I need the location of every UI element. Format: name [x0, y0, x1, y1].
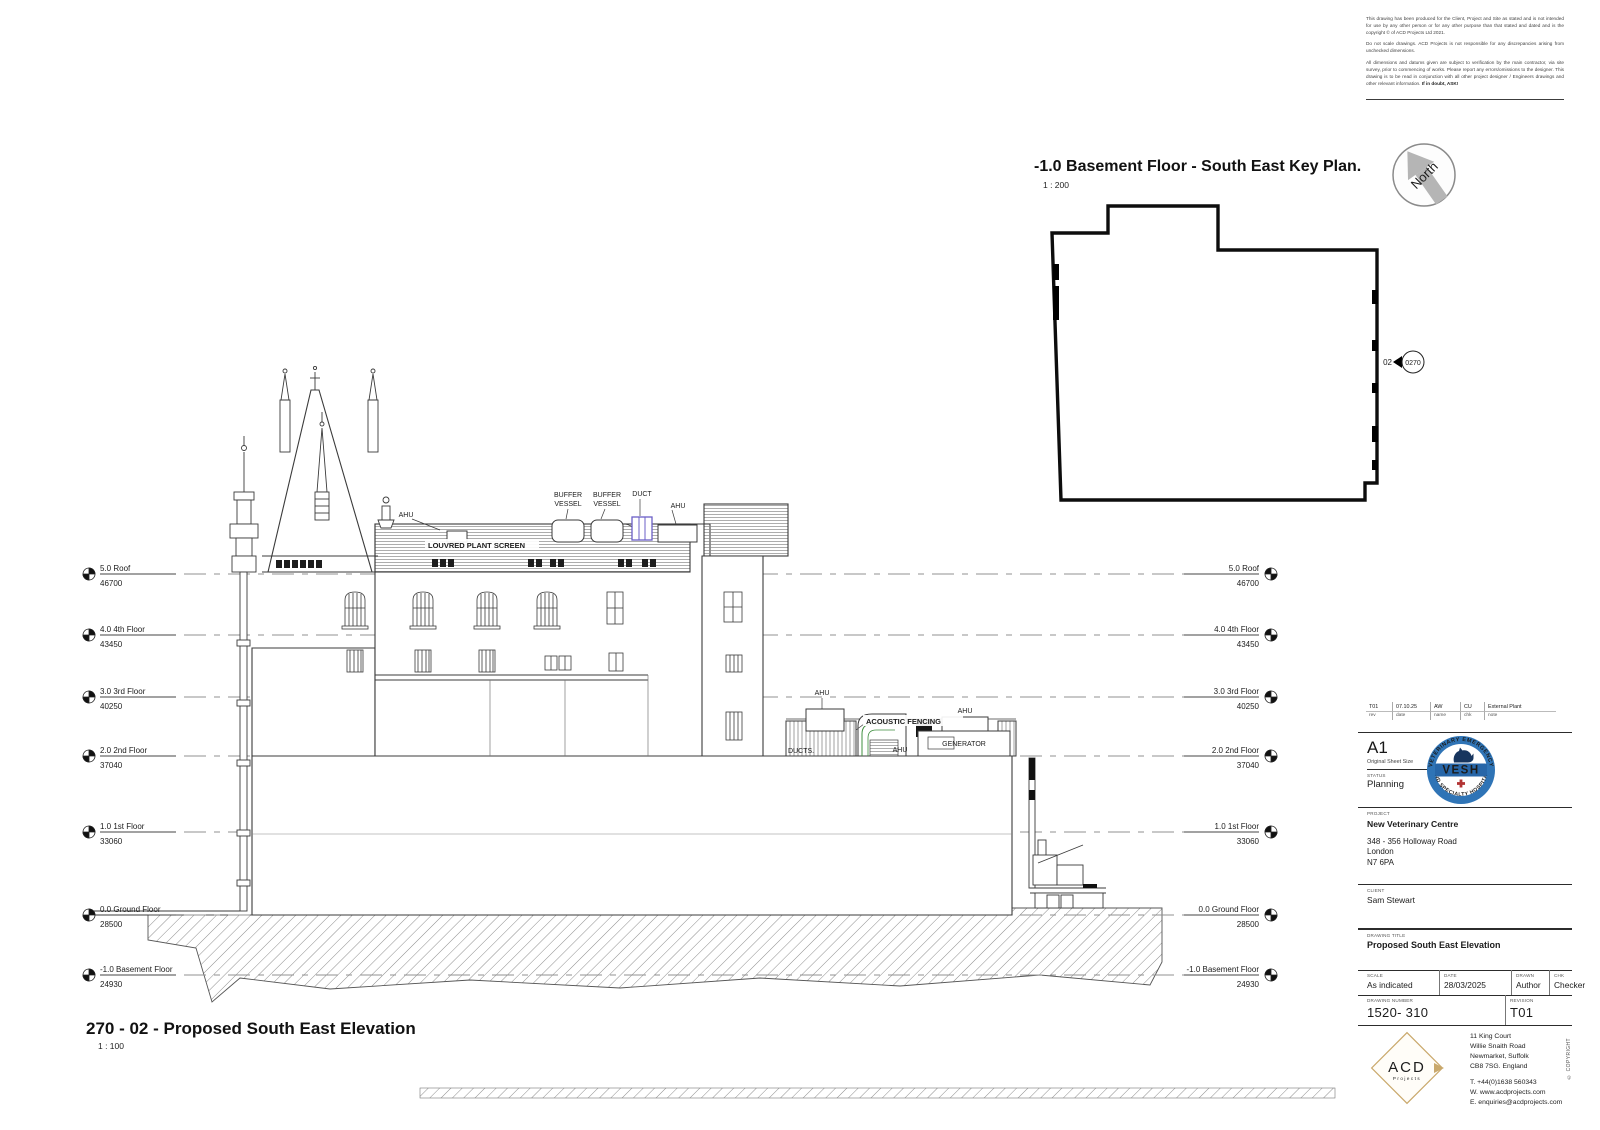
svg-text:5.0 Roof: 5.0 Roof — [100, 564, 131, 573]
corner-cupola — [378, 497, 394, 528]
svg-text:VESSEL: VESSEL — [554, 501, 581, 508]
elevation-title: 270 - 02 - Proposed South East Elevation — [86, 1019, 416, 1039]
label-ahu: AHU — [958, 708, 973, 715]
svg-text:24930: 24930 — [100, 980, 123, 989]
drawing-sheet: 5.0 Roof46700 4.0 4th Floor43450 3.0 3rd… — [0, 0, 1600, 1130]
label-acoustic-fencing: ACOUSTIC FENCING — [866, 717, 941, 726]
client-name: Sam Stewart — [1367, 895, 1572, 905]
svg-text:3.0 3rd Floor: 3.0 3rd Floor — [100, 687, 146, 696]
vesh-logo: VETERINARY EMERGENCY AND SPECIALTY HOSPI… — [1426, 735, 1496, 805]
svg-text:28500: 28500 — [100, 920, 123, 929]
svg-text:VESSEL: VESSEL — [593, 501, 620, 508]
svg-text:24930: 24930 — [1237, 980, 1260, 989]
client-label: CLIENT — [1367, 888, 1572, 893]
copyright-note: © COPYRIGHT — [1566, 1038, 1572, 1080]
svg-text:33060: 33060 — [1237, 837, 1260, 846]
svg-text:0.0 Ground Floor: 0.0 Ground Floor — [1199, 905, 1260, 914]
disclaimer-p3: All dimensions and datums given are subj… — [1366, 60, 1564, 87]
svg-text:1.0 1st Floor: 1.0 1st Floor — [1215, 822, 1260, 831]
lower-right-plant — [1029, 758, 1106, 908]
drawing-title-row: DRAWING TITLE Proposed South East Elevat… — [1358, 928, 1572, 970]
elevation-scale: 1 : 100 — [98, 1041, 124, 1051]
duct-box — [632, 517, 652, 540]
title-block: T01 07.10.25 AW CU External Plant rev da… — [1358, 702, 1572, 1110]
svg-text:2.0 2nd Floor: 2.0 2nd Floor — [1212, 746, 1259, 755]
disclaimer-p2: Do not scale drawings. ACD Projects is n… — [1366, 41, 1564, 55]
key-plan-scale: 1 : 200 — [1043, 180, 1069, 190]
revision-table: T01 07.10.25 AW CU External Plant rev da… — [1358, 702, 1572, 732]
building-masses — [252, 390, 1012, 915]
firm-address: 11 King Court Willie Snaith Road Newmark… — [1470, 1032, 1570, 1108]
svg-text:40250: 40250 — [100, 702, 123, 711]
ground-hatch — [148, 908, 1335, 1098]
svg-text:0270: 0270 — [1405, 360, 1421, 367]
date-value: 28/03/2025 — [1444, 980, 1511, 990]
svg-text:5.0 Roof: 5.0 Roof — [1229, 564, 1260, 573]
svg-text:VESH: VESH — [1442, 765, 1479, 777]
key-plan-title: -1.0 Basement Floor - South East Key Pla… — [1034, 158, 1361, 176]
svg-text:37040: 37040 — [100, 761, 123, 770]
drawing-title-value: Proposed South East Elevation — [1367, 940, 1572, 950]
label-ahu: AHU — [671, 503, 686, 510]
svg-text:46700: 46700 — [100, 579, 123, 588]
svg-text:ACD: ACD — [1388, 1059, 1426, 1076]
label-generator: GENERATOR — [942, 741, 986, 748]
svg-text:-1.0 Basement Floor: -1.0 Basement Floor — [100, 965, 173, 974]
svg-text:4.0 4th Floor: 4.0 4th Floor — [1214, 625, 1259, 634]
project-address: 348 - 356 Holloway Road London N7 6PA — [1367, 837, 1572, 868]
svg-text:43450: 43450 — [1237, 640, 1260, 649]
client-row: CLIENT Sam Stewart — [1358, 884, 1572, 928]
acd-logo: ACD Projects — [1366, 1027, 1448, 1109]
svg-text:46700: 46700 — [1237, 579, 1260, 588]
chk-value: Checker — [1554, 980, 1585, 990]
buffer-vessel-2 — [591, 520, 623, 542]
project-name: New Veterinary Centre — [1367, 819, 1572, 829]
svg-text:43450: 43450 — [100, 640, 123, 649]
firm-row: ACD Projects 11 King Court Willie Snaith… — [1358, 1025, 1572, 1110]
ahu-deck-box — [806, 709, 844, 731]
label-ahu: AHU — [399, 512, 414, 519]
svg-text:1.0 1st Floor: 1.0 1st Floor — [100, 822, 145, 831]
drawing-title-label: DRAWING TITLE — [1367, 933, 1572, 938]
drawing-number-value: 1520- 310 — [1367, 1005, 1505, 1020]
svg-text:Projects: Projects — [1393, 1076, 1421, 1081]
revision-value: T01 — [1510, 1005, 1572, 1020]
site-cut-strip — [420, 1088, 1335, 1098]
project-row: PROJECT New Veterinary Centre 348 - 356 … — [1358, 807, 1572, 884]
label-ahu: AHU — [815, 690, 830, 697]
buffer-vessel-1 — [552, 520, 584, 542]
svg-text:0.0 Ground Floor: 0.0 Ground Floor — [100, 905, 161, 914]
drawn-value: Author — [1516, 980, 1549, 990]
firm-contact: T. +44(0)1638 560343 W. www.acdprojects.… — [1470, 1078, 1570, 1108]
svg-text:-1.0 Basement Floor: -1.0 Basement Floor — [1187, 965, 1260, 974]
label-ducts: DUCTS. — [788, 748, 814, 755]
disclaimer-notes: This drawing has been produced for the C… — [1366, 16, 1564, 100]
scale-value: As indicated — [1367, 980, 1439, 990]
svg-text:BUFFER: BUFFER — [554, 492, 582, 499]
label-ahu: AHU — [893, 747, 908, 754]
label-duct: DUCT — [632, 491, 652, 498]
ahu-roof-box — [658, 525, 697, 542]
svg-text:40250: 40250 — [1237, 702, 1260, 711]
disclaimer-p1: This drawing has been produced for the C… — [1366, 16, 1564, 36]
svg-text:2.0 2nd Floor: 2.0 2nd Floor — [100, 746, 147, 755]
number-row: DRAWING NUMBER 1520- 310 REVISION T01 — [1358, 995, 1572, 1025]
north-arrow: North — [1393, 142, 1455, 210]
svg-text:4.0 4th Floor: 4.0 4th Floor — [100, 625, 145, 634]
svg-text:3.0 3rd Floor: 3.0 3rd Floor — [1214, 687, 1260, 696]
svg-text:37040: 37040 — [1237, 761, 1260, 770]
scale-date-row: SCALE As indicated DATE 28/03/2025 DRAWN… — [1358, 970, 1572, 995]
svg-text:BUFFER: BUFFER — [593, 492, 621, 499]
elevation-marker: 02 0270 — [1383, 351, 1424, 373]
key-plan: 02 0270 — [1052, 206, 1424, 500]
label-louvred-plant-screen: LOUVRED PLANT SCREEN — [428, 541, 525, 550]
svg-text:33060: 33060 — [100, 837, 123, 846]
svg-text:02: 02 — [1383, 358, 1392, 367]
project-label: PROJECT — [1367, 811, 1572, 816]
svg-text:28500: 28500 — [1237, 920, 1260, 929]
